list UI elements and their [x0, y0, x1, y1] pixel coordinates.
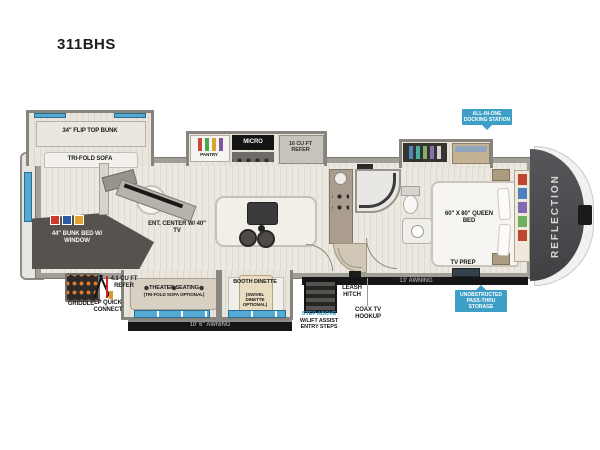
- booth-dinette-label: BOOTH DINETTE: [233, 279, 277, 285]
- lp-quick-connect-label: LP QUICK CONNECT: [88, 300, 128, 313]
- step-above-detail-label: w/LIFT ASSIST ENTRY STEPS: [295, 318, 343, 330]
- pantry-item-red: [198, 138, 202, 151]
- tv-prep-label: TV PREP: [442, 260, 484, 267]
- lp-red-line: [106, 276, 108, 298]
- floorplan-canvas: 311BHS 34" FLIP TOP BUNK TRI-FOLD SOFA P…: [0, 0, 600, 450]
- leash-hitch-mount: [349, 271, 361, 277]
- refer-41-label: 4.1 CU FT REFER: [110, 276, 138, 289]
- booth-window-row: [228, 310, 286, 318]
- closet-item-purple: [518, 202, 527, 213]
- tv-prep-plate: [452, 268, 480, 277]
- wardrobe: [403, 143, 447, 162]
- awning-right-label: 13' AWNING: [388, 278, 444, 285]
- hitch-pin: [578, 205, 592, 225]
- top-wall-vent: [357, 164, 373, 169]
- brand-name: REFLECTION: [550, 186, 561, 258]
- pantry-item-yellow: [212, 138, 216, 151]
- clothes-purple: [430, 146, 434, 159]
- clothes-blue: [409, 146, 413, 159]
- closet-item-green: [518, 216, 527, 227]
- clothes-gray: [437, 146, 441, 159]
- tri-fold-sofa-label: TRI-FOLD SOFA: [48, 156, 132, 163]
- bunk-slide-window-left: [34, 113, 66, 118]
- closet-item-blue: [518, 188, 527, 199]
- logo-red: [50, 215, 60, 225]
- badge-pointer-down: [482, 125, 492, 130]
- counter-sink: [334, 172, 347, 185]
- dresser-top: [455, 146, 487, 152]
- bunk-bed-44-label: 44" BUNK BED w/ WINDOW: [42, 231, 112, 244]
- closet-item-red2: [518, 230, 527, 241]
- closet-item-red: [518, 174, 527, 185]
- bunk-slide-window-right: [114, 113, 146, 118]
- theater-window-row: [134, 310, 210, 318]
- passthru-badge: UNOBSTRUCTED PASS-THRU STORAGE: [455, 290, 507, 312]
- shower-glass: [359, 173, 396, 208]
- pillow-1: [497, 188, 511, 221]
- pantry-item-green: [205, 138, 209, 151]
- pantry: [190, 135, 230, 162]
- vanity-sink: [411, 225, 424, 238]
- clothes-green: [423, 146, 427, 159]
- bunk-room-shelf-logos: [50, 215, 84, 225]
- pantry-item-purple: [219, 138, 223, 151]
- cooktop: [232, 152, 274, 162]
- bar-stool-2: [257, 230, 275, 248]
- refrigerator-16-label: 16 CU FT REFER: [281, 141, 320, 153]
- booth-dinette-option-label: (SWIVEL DINETTE OPTIONAL): [237, 292, 273, 307]
- docking-station-badge-label: ALL-IN-ONE DOCKING STATION: [464, 111, 510, 123]
- badge-pointer-up: [476, 285, 486, 290]
- front-closet: [514, 170, 530, 262]
- model-title: 311BHS: [57, 36, 116, 53]
- leash-hitch-label: LEASH HITCH: [338, 285, 366, 298]
- logo-blue: [62, 215, 72, 225]
- bath-vanity: [402, 218, 432, 244]
- rear-window: [24, 172, 32, 222]
- awning-left-label: 10' 6" AWNING: [168, 322, 252, 329]
- entertainment-center-label: ENT. CENTER w/ 40" TV: [146, 221, 208, 234]
- theater-seating-option-label: (TRI-FOLD SOFA OPTIONAL): [128, 292, 220, 297]
- passthru-badge-label: UNOBSTRUCTED PASS-THRU STORAGE: [460, 292, 502, 310]
- counter-burners: [332, 188, 349, 211]
- lp-tank: [109, 291, 113, 299]
- island-sink: [247, 202, 278, 225]
- toilet-bowl: [403, 195, 418, 214]
- pantry-label: PANTRY: [190, 152, 228, 157]
- step-above-label: STEP ABOVE: [295, 311, 343, 317]
- docking-station-badge: ALL-IN-ONE DOCKING STATION: [462, 109, 512, 125]
- bar-stool-1: [239, 229, 257, 247]
- dresser: [452, 143, 490, 164]
- flip-top-bunk-label: 34" FLIP TOP BUNK: [42, 128, 138, 135]
- coax-line: [367, 278, 368, 306]
- coax-label: COAX TV HOOKUP: [350, 307, 386, 320]
- nightstand-top: [492, 169, 510, 181]
- clothes-teal: [416, 146, 420, 159]
- microwave-label: MICRO: [232, 139, 274, 146]
- pillow-2: [497, 224, 511, 257]
- queen-bed-label: 60" x 80" QUEEN BED: [441, 211, 497, 224]
- theater-seating-label: THEATER SEATING: [128, 285, 220, 291]
- entry-steps: [304, 280, 337, 313]
- logo-yellow: [74, 215, 84, 225]
